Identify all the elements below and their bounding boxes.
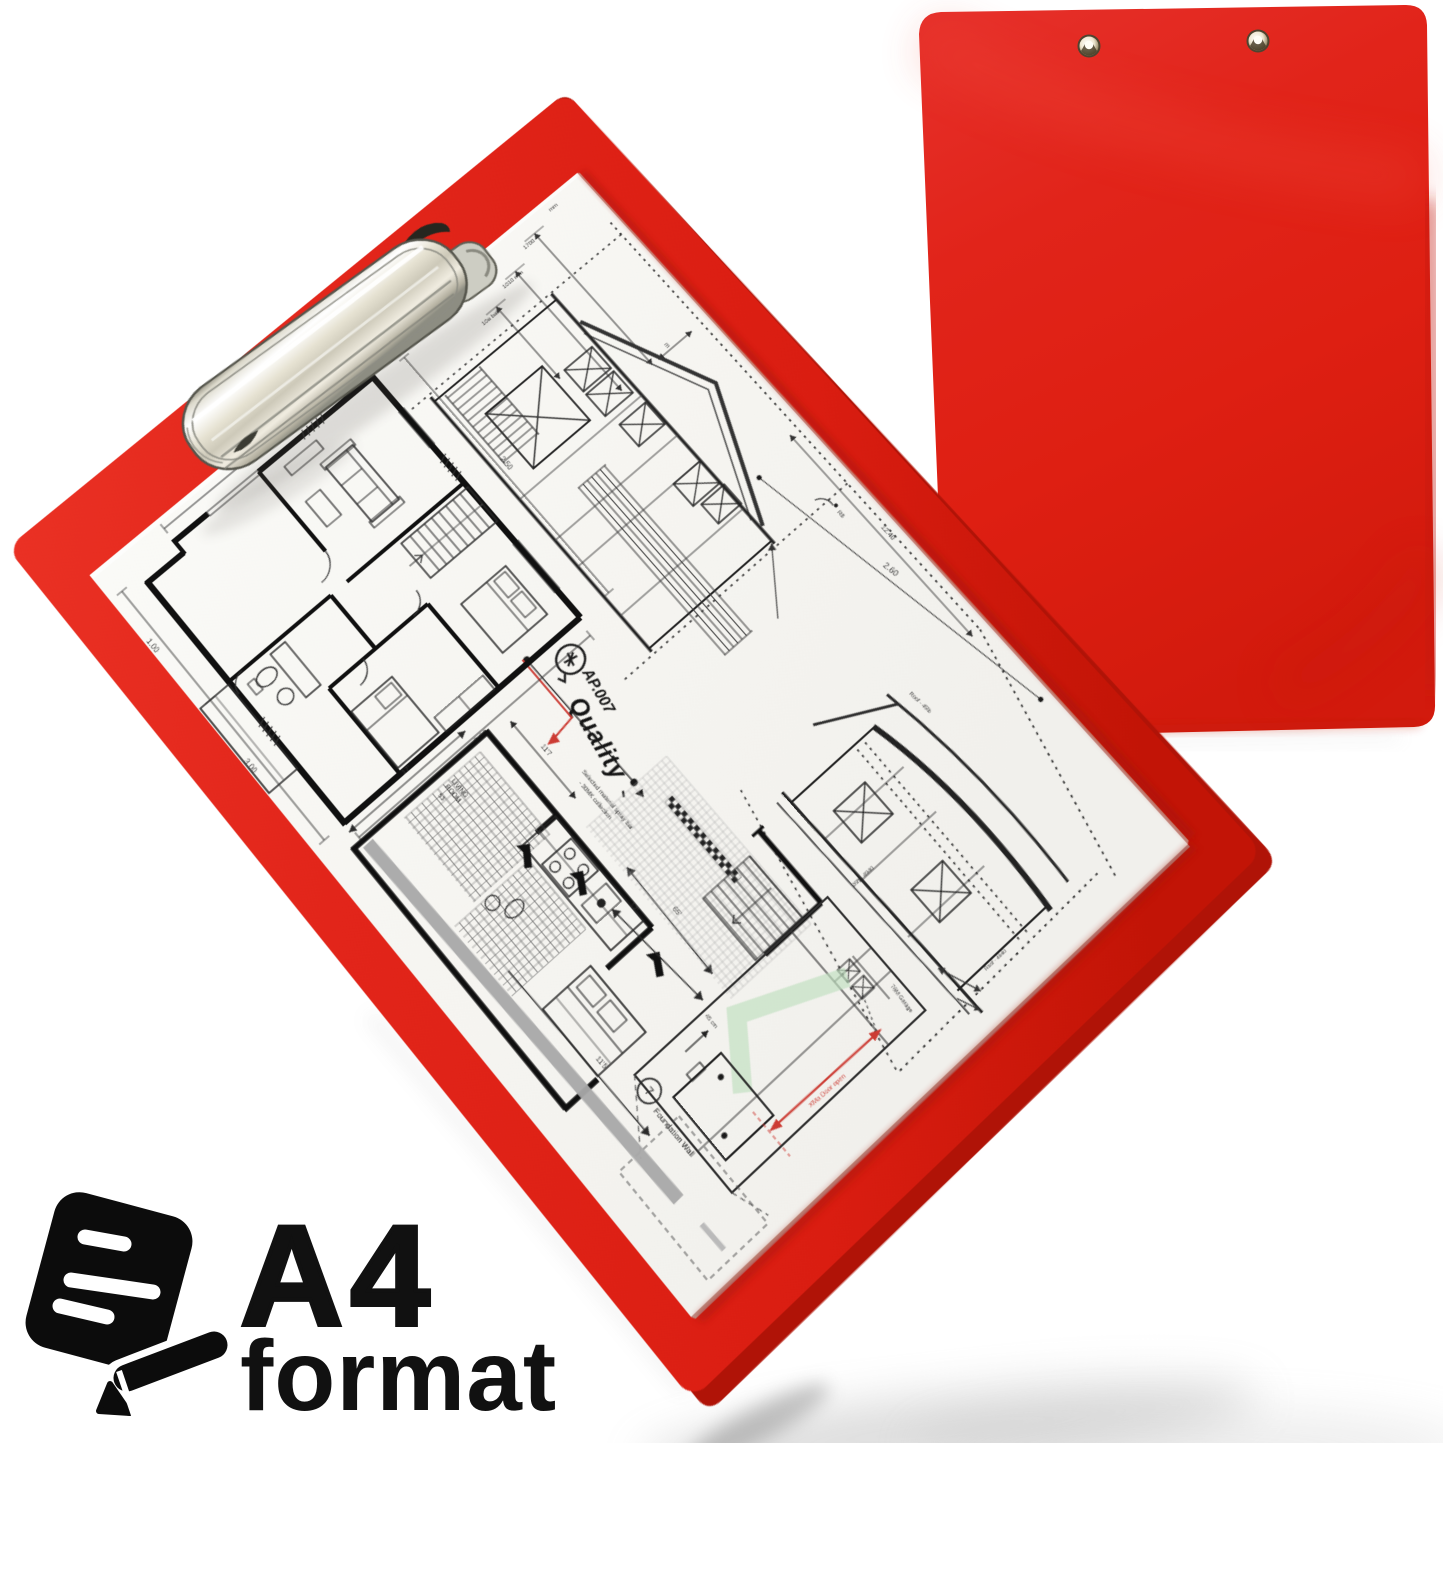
svg-text:format: format xyxy=(240,1320,557,1432)
